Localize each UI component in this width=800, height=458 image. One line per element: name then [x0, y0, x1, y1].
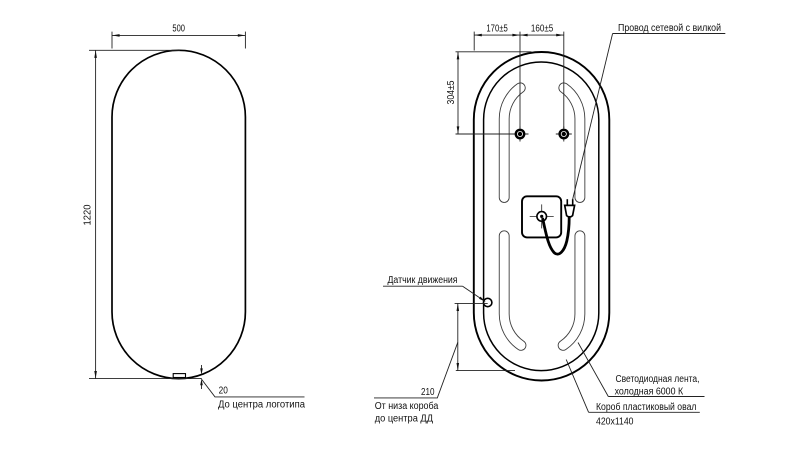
svg-text:170±5: 170±5 — [486, 23, 508, 34]
svg-text:От низа короба: От низа короба — [375, 400, 439, 412]
svg-text:210: 210 — [421, 387, 435, 398]
svg-text:1220: 1220 — [83, 204, 94, 225]
svg-text:холодная 6000 К: холодная 6000 К — [615, 386, 684, 397]
svg-text:До центра логотипа: До центра логотипа — [218, 400, 305, 411]
svg-text:20: 20 — [219, 386, 229, 397]
svg-text:420х1140: 420х1140 — [596, 416, 634, 427]
svg-text:304±5: 304±5 — [446, 80, 457, 104]
svg-text:500: 500 — [172, 23, 185, 34]
svg-text:Светодиодная лента,: Светодиодная лента, — [616, 374, 700, 385]
svg-text:Короб пластиковый овал: Короб пластиковый овал — [596, 401, 697, 413]
svg-text:160±5: 160±5 — [531, 23, 554, 34]
svg-text:Датчик движения: Датчик движения — [388, 275, 458, 286]
svg-text:Провод сетевой с вилкой: Провод сетевой с вилкой — [618, 23, 721, 34]
svg-text:до центра ДД: до центра ДД — [375, 413, 434, 424]
